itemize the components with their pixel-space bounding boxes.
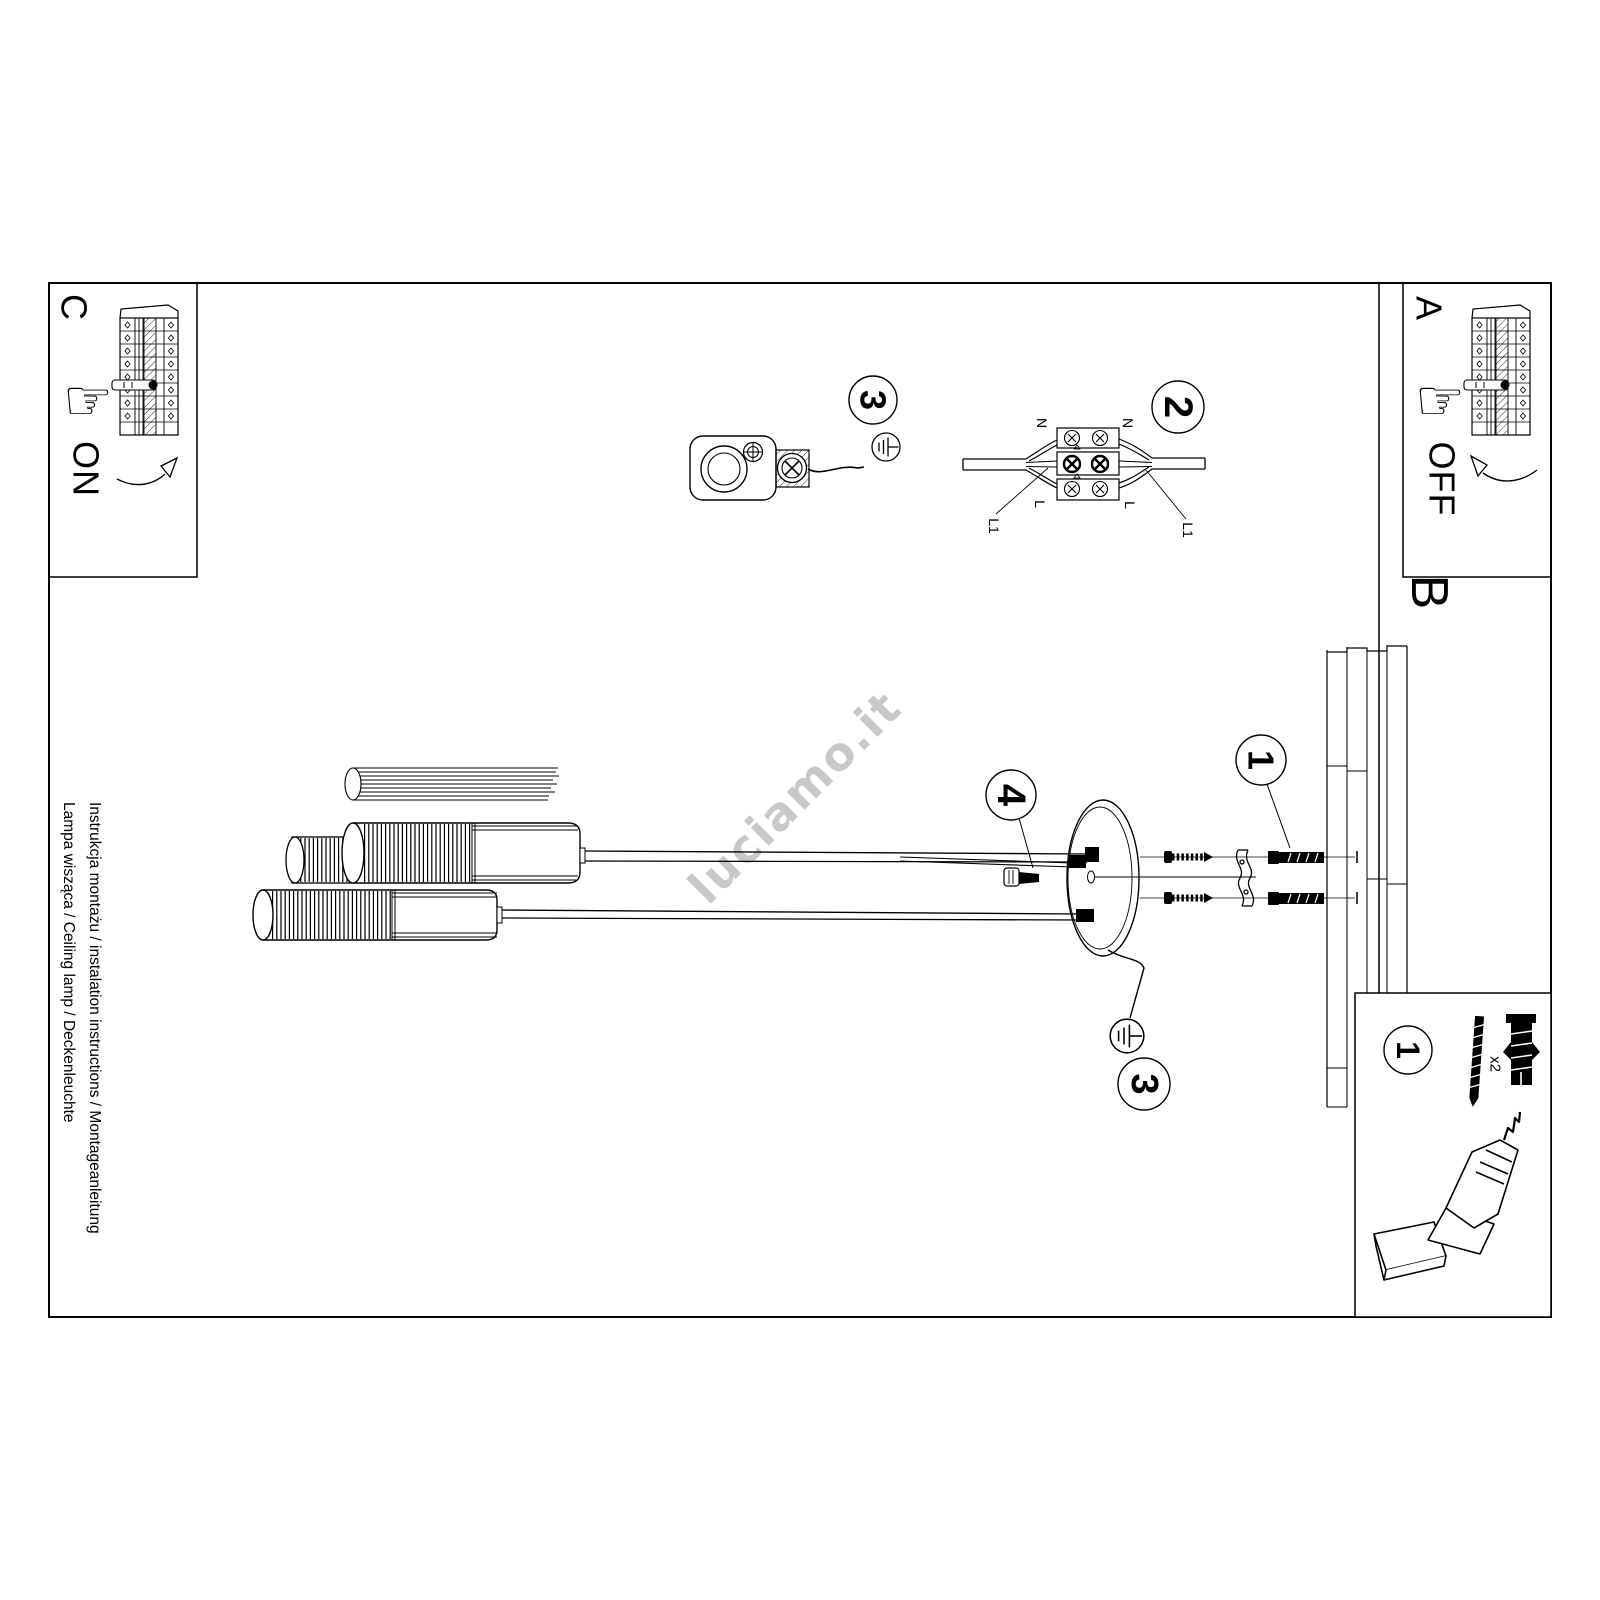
rod-mount bbox=[1069, 855, 1086, 868]
step-2-number: 2 bbox=[1156, 396, 1200, 418]
step-1-number: 1 bbox=[1390, 1041, 1426, 1059]
watermark: luciamo.it bbox=[678, 680, 912, 914]
on-label: ON bbox=[66, 441, 107, 497]
section-a-label: A bbox=[1409, 296, 1450, 320]
ground-wire bbox=[1108, 950, 1144, 1018]
terminal-l-right: L bbox=[1122, 501, 1138, 509]
terminal-n-right: N bbox=[1120, 418, 1136, 428]
suspension-rods bbox=[497, 848, 1087, 923]
fusebox-c bbox=[112, 305, 178, 435]
step-1-number: 1 bbox=[1241, 750, 1282, 770]
parts-box: 1 x2 bbox=[1355, 993, 1551, 1317]
section-c-box: C ☞ ON bbox=[54, 294, 179, 497]
lamp-tube-far bbox=[345, 768, 559, 800]
terminal-l1-left: L1 bbox=[986, 518, 1002, 534]
section-c-label: C bbox=[54, 294, 95, 320]
fixing-row-lower bbox=[1140, 892, 1357, 905]
off-label: OFF bbox=[1422, 442, 1463, 517]
instruction-sheet: luciamo.it C ☞ ON bbox=[0, 0, 1600, 1600]
terminal-l-left: L bbox=[1032, 500, 1048, 508]
terminal-block bbox=[1057, 428, 1119, 500]
fusebox-a bbox=[1464, 305, 1530, 435]
ground-wire bbox=[808, 467, 864, 472]
section-a-box: A ☞ OFF bbox=[1409, 296, 1538, 517]
step2-wiring-diagram: 2 bbox=[963, 381, 1205, 538]
canopy bbox=[1067, 800, 1139, 956]
step4-grub-screw: 4 bbox=[986, 770, 1039, 886]
terminal-n-left: N bbox=[1034, 418, 1050, 428]
screw-qty-label: x2 bbox=[1487, 1056, 1504, 1072]
step-3-number: 3 bbox=[1123, 1073, 1165, 1094]
hand-icon: ☞ bbox=[63, 369, 113, 434]
lamp-tube-bottom bbox=[253, 890, 497, 940]
lamp-tube-top bbox=[342, 823, 580, 883]
step-3-number: 3 bbox=[853, 390, 894, 410]
caption-line-1: Instrukcja montażu / instalation instruc… bbox=[86, 802, 103, 1234]
rod-mount bbox=[1076, 909, 1094, 922]
caption-line-2: Lampa wisząca / Ceiling lamp / Deckenleu… bbox=[60, 802, 77, 1123]
diagram-canvas: luciamo.it C ☞ ON bbox=[0, 0, 1600, 1600]
terminal-l1-right: L1 bbox=[1180, 522, 1196, 538]
arrow-icon bbox=[1471, 456, 1537, 481]
hand-icon: ☞ bbox=[1415, 369, 1465, 434]
step3-hook-detail: 3 bbox=[690, 376, 900, 500]
arrow-icon bbox=[117, 458, 177, 485]
caption-block: Instrukcja montażu / instalation instruc… bbox=[60, 802, 103, 1234]
step-4-number: 4 bbox=[989, 784, 1033, 807]
rod-mount bbox=[1085, 847, 1099, 862]
section-b-label: B bbox=[1400, 575, 1458, 610]
